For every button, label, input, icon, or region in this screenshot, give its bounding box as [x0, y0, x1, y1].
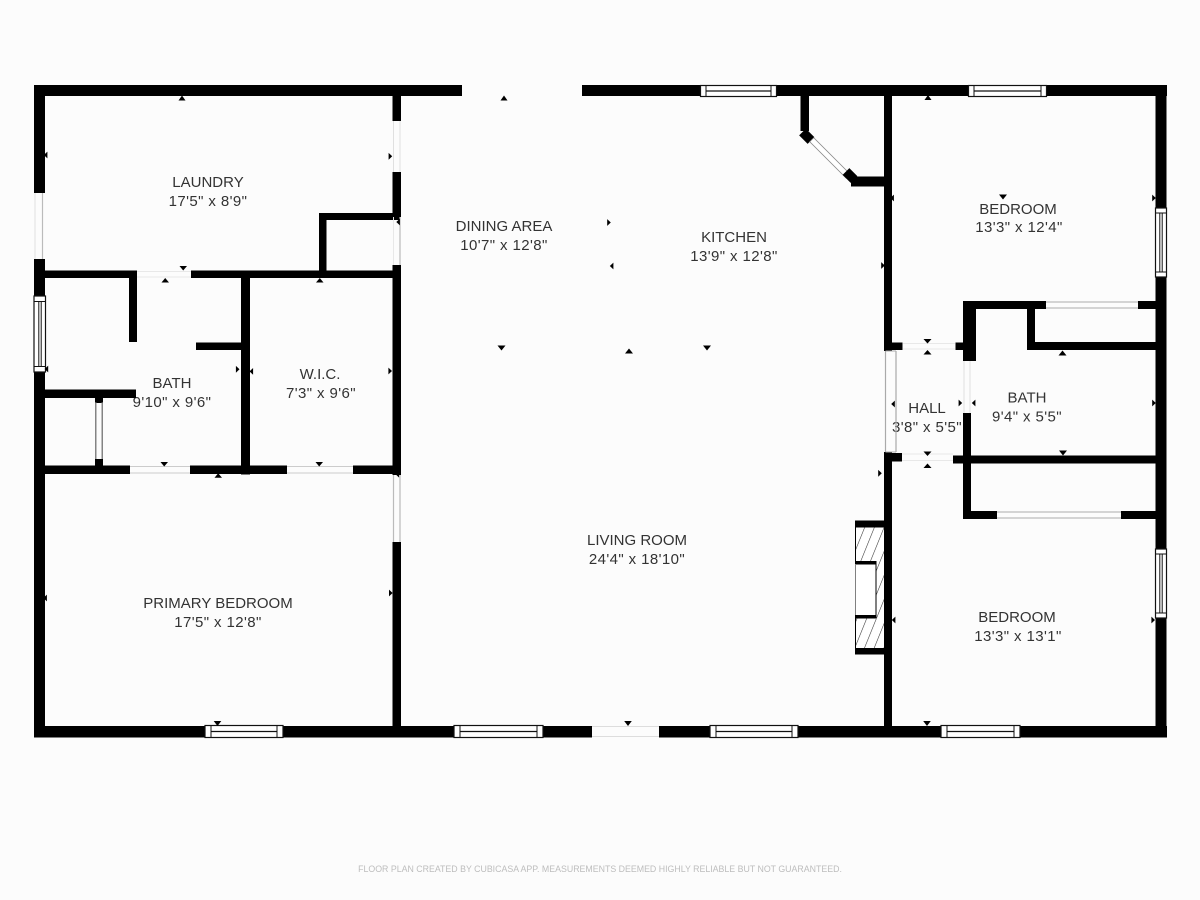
svg-text:KITCHEN: KITCHEN	[701, 229, 767, 246]
svg-text:DINING AREA: DINING AREA	[456, 218, 553, 235]
svg-text:BEDROOM: BEDROOM	[979, 201, 1057, 218]
svg-text:13'9" x 12'8": 13'9" x 12'8"	[690, 248, 777, 265]
svg-text:13'3" x 12'4": 13'3" x 12'4"	[975, 219, 1062, 236]
svg-text:FLOOR PLAN CREATED BY CUBICASA: FLOOR PLAN CREATED BY CUBICASA APP. MEAS…	[358, 864, 842, 874]
svg-text:17'5" x 8'9": 17'5" x 8'9"	[169, 193, 248, 210]
svg-text:BATH: BATH	[153, 375, 192, 392]
svg-text:HALL: HALL	[908, 400, 946, 417]
svg-text:7'3" x 9'6": 7'3" x 9'6"	[286, 385, 356, 402]
svg-text:9'4" x 5'5": 9'4" x 5'5"	[992, 409, 1062, 426]
svg-text:BEDROOM: BEDROOM	[978, 609, 1056, 626]
svg-text:13'3" x 13'1": 13'3" x 13'1"	[974, 628, 1061, 645]
svg-text:PRIMARY BEDROOM: PRIMARY BEDROOM	[143, 595, 292, 612]
svg-text:9'10" x 9'6": 9'10" x 9'6"	[133, 394, 212, 411]
svg-text:3'8" x 5'5": 3'8" x 5'5"	[892, 419, 962, 436]
svg-text:LIVING ROOM: LIVING ROOM	[587, 532, 687, 549]
svg-text:10'7" x 12'8": 10'7" x 12'8"	[460, 237, 547, 254]
svg-text:BATH: BATH	[1008, 390, 1047, 407]
svg-text:W.I.C.: W.I.C.	[300, 366, 341, 383]
svg-text:24'4" x 18'10": 24'4" x 18'10"	[589, 551, 685, 568]
svg-text:17'5" x 12'8": 17'5" x 12'8"	[174, 614, 261, 631]
svg-text:LAUNDRY: LAUNDRY	[172, 174, 243, 191]
